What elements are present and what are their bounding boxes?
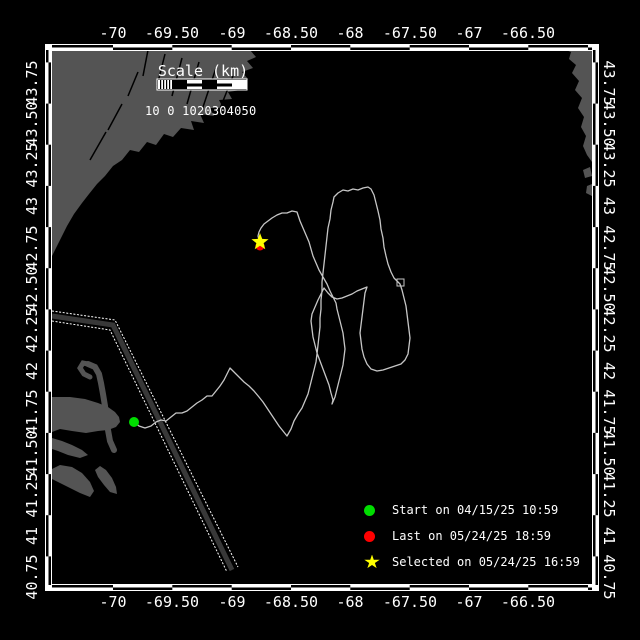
lat-label-right: 43	[600, 197, 618, 215]
lat-label-left: 41	[23, 527, 41, 545]
legend-item-selected: Selected on 05/24/25 16:59	[364, 553, 580, 571]
scale-bar-numbers: 10 0 1020304050	[145, 104, 256, 118]
legend-selected-label: Selected on 05/24/25 16:59	[392, 555, 580, 569]
frame-tick-block	[232, 588, 291, 591]
frame-tick-block	[46, 268, 49, 309]
land-islet-1	[583, 167, 592, 178]
lat-label-right: 41	[600, 527, 618, 545]
land-islet-2	[586, 184, 592, 196]
lon-label-bottom: -66.50	[501, 593, 555, 611]
lat-label-left: 42.75	[23, 225, 41, 270]
lat-label-right: 42.25	[600, 307, 618, 352]
frame-tick-block	[46, 104, 49, 145]
lat-label-left: 41.75	[23, 389, 41, 434]
frame-tick-block	[588, 588, 592, 591]
lon-label-top: -67	[455, 24, 482, 42]
lat-label-right: 43.50	[600, 101, 618, 146]
frame-tick-block	[588, 48, 592, 51]
frame-tick-block	[593, 50, 596, 62]
frame-tick-block	[113, 588, 172, 591]
lon-label-top: -69	[218, 24, 245, 42]
last-dot-icon	[364, 531, 386, 542]
frame-tick-block	[49, 309, 52, 350]
frame-tick-block	[528, 45, 588, 48]
frame-tick-block	[52, 585, 113, 588]
legend-last-label: Last on 05/24/25 18:59	[392, 529, 551, 543]
frame-tick-block	[172, 585, 231, 588]
lon-label-top: -67.50	[383, 24, 437, 42]
frame-tick-block	[596, 556, 599, 585]
scale-bar	[157, 79, 247, 90]
lon-label-bottom: -67.50	[383, 593, 437, 611]
frame-tick-block	[596, 145, 599, 186]
frame-tick-block	[593, 104, 596, 145]
frame-tick-block	[596, 309, 599, 350]
map-figure: Scale (km) 10 0 1020304050 Start on 04/1…	[0, 0, 640, 640]
lat-label-right: 42.75	[600, 225, 618, 270]
frame-tick-block	[593, 515, 596, 556]
frame-tick-block	[596, 474, 599, 515]
lon-label-bottom: -67	[455, 593, 482, 611]
frame-tick-block	[528, 585, 588, 588]
lon-label-bottom: -68.50	[264, 593, 318, 611]
frame-tick-block	[593, 186, 596, 227]
lat-label-left: 40.75	[23, 554, 41, 599]
frame-tick-block	[596, 392, 599, 433]
land-marthas-vineyard	[50, 465, 94, 497]
land-nova-scotia	[566, 50, 592, 162]
lat-label-right: 42.50	[600, 266, 618, 311]
frame-tick-block	[113, 48, 172, 51]
scale-bar-title: Scale (km)	[157, 62, 249, 80]
lat-label-right: 43.75	[600, 60, 618, 105]
lon-label-top: -66.50	[501, 24, 555, 42]
lat-label-left: 43.50	[23, 101, 41, 146]
glider-track	[134, 187, 410, 436]
lat-label-left: 43	[23, 197, 41, 215]
frame-tick-block	[49, 474, 52, 515]
frame-tick-block	[172, 45, 231, 48]
frame-tick-block	[49, 62, 52, 103]
frame-tick-block	[596, 62, 599, 103]
frame-tick-block	[593, 433, 596, 474]
lon-label-bottom: -69	[218, 593, 245, 611]
frame-tick-block	[46, 186, 49, 227]
land-nantucket	[95, 466, 117, 494]
start-position-dot[interactable]	[129, 417, 139, 427]
lon-label-top: -68	[336, 24, 363, 42]
lat-label-right: 42	[600, 362, 618, 380]
lat-label-left: 42.25	[23, 307, 41, 352]
frame-tick-block	[291, 45, 350, 48]
land-cape-hook	[80, 363, 90, 377]
lon-label-top: -69.50	[145, 24, 199, 42]
lon-label-top: -68.50	[264, 24, 318, 42]
frame-tick-block	[49, 145, 52, 186]
lon-label-bottom: -69.50	[145, 593, 199, 611]
lat-label-right: 41.50	[600, 430, 618, 475]
frame-tick-block	[52, 45, 113, 48]
frame-tick-block	[350, 48, 409, 51]
frame-tick-block	[596, 227, 599, 268]
frame-tick-block	[46, 515, 49, 556]
legend-item-start: Start on 04/15/25 10:59	[364, 501, 558, 519]
frame-tick-block	[49, 392, 52, 433]
lat-label-right: 41.25	[600, 472, 618, 517]
legend-start-label: Start on 04/15/25 10:59	[392, 503, 558, 517]
frame-tick-block	[350, 588, 409, 591]
lon-label-top: -70	[99, 24, 126, 42]
lat-label-left: 41.25	[23, 472, 41, 517]
frame-tick-block	[49, 556, 52, 585]
frame-tick-block	[46, 351, 49, 392]
lat-label-left: 43.75	[23, 60, 41, 105]
lat-label-left: 42.50	[23, 266, 41, 311]
land-cape-south	[52, 438, 88, 458]
lat-label-left: 43.25	[23, 142, 41, 187]
legend-item-last: Last on 05/24/25 18:59	[364, 527, 551, 545]
frame-tick-block	[410, 585, 469, 588]
frame-tick-block	[49, 227, 52, 268]
frame-tick-block	[593, 268, 596, 309]
lat-label-left: 42	[23, 362, 41, 380]
frame-tick-block	[46, 433, 49, 474]
frame-tick-block	[469, 588, 528, 591]
start-dot-icon	[364, 505, 386, 516]
selected-star-icon	[364, 555, 386, 570]
frame-tick-block	[232, 48, 291, 51]
shipping-lane-band	[52, 316, 232, 570]
frame-tick-block	[469, 48, 528, 51]
lat-label-right: 40.75	[600, 554, 618, 599]
lat-label-right: 43.25	[600, 142, 618, 187]
frame-tick-block	[46, 50, 49, 62]
shipping-lane-edge	[52, 321, 227, 572]
lon-label-bottom: -68	[336, 593, 363, 611]
frame-tick-block	[410, 45, 469, 48]
frame-tick-block	[593, 351, 596, 392]
lon-label-bottom: -70	[99, 593, 126, 611]
lat-label-right: 41.75	[600, 389, 618, 434]
lat-label-left: 41.50	[23, 430, 41, 475]
frame-tick-block	[291, 585, 350, 588]
